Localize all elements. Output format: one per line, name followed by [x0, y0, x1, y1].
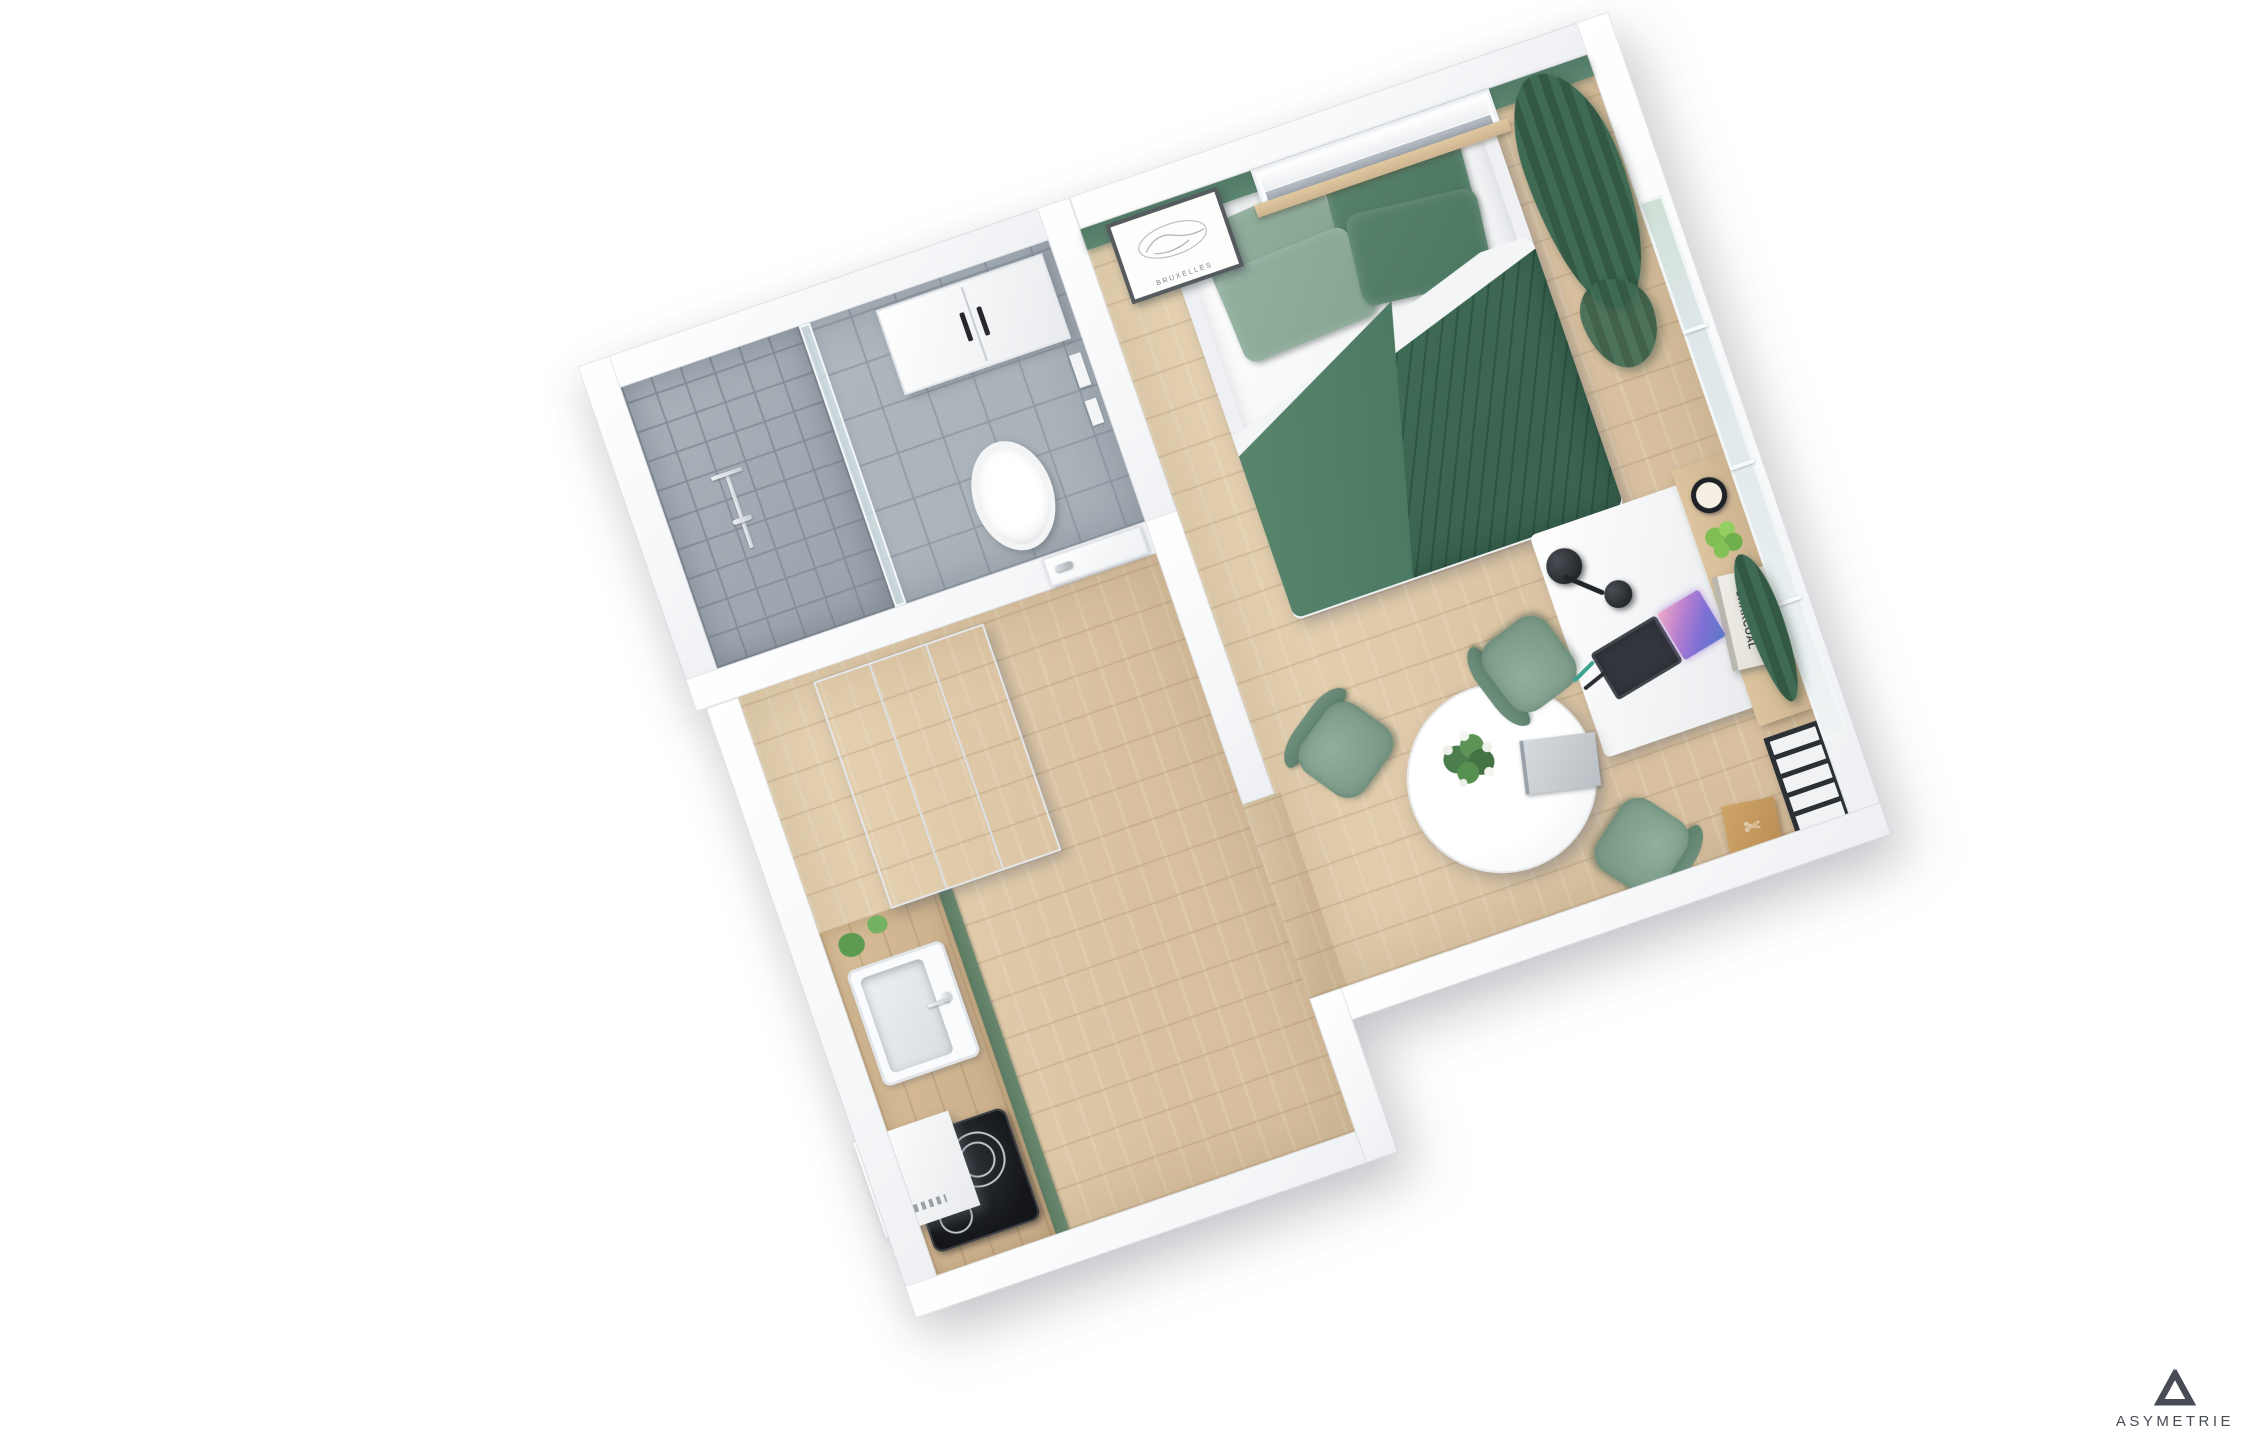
penrose-triangle-icon [2152, 1367, 2198, 1409]
apartment-3d-plan: BRUXELLES [578, 8, 1947, 1321]
magazine [1519, 732, 1601, 795]
glass-mullion [1682, 323, 1708, 335]
glass-mullion [1776, 595, 1802, 607]
bathroom-door-handle [1055, 560, 1074, 572]
brand-name: ASYMETRIE [2116, 1413, 2234, 1430]
glass-mullion [1729, 459, 1755, 471]
floorplan-render: BRUXELLES [0, 0, 2250, 1440]
brand-logo: ASYMETRIE [2116, 1367, 2234, 1430]
building-shell: BRUXELLES [578, 8, 1947, 1321]
sink-basin [859, 958, 954, 1074]
